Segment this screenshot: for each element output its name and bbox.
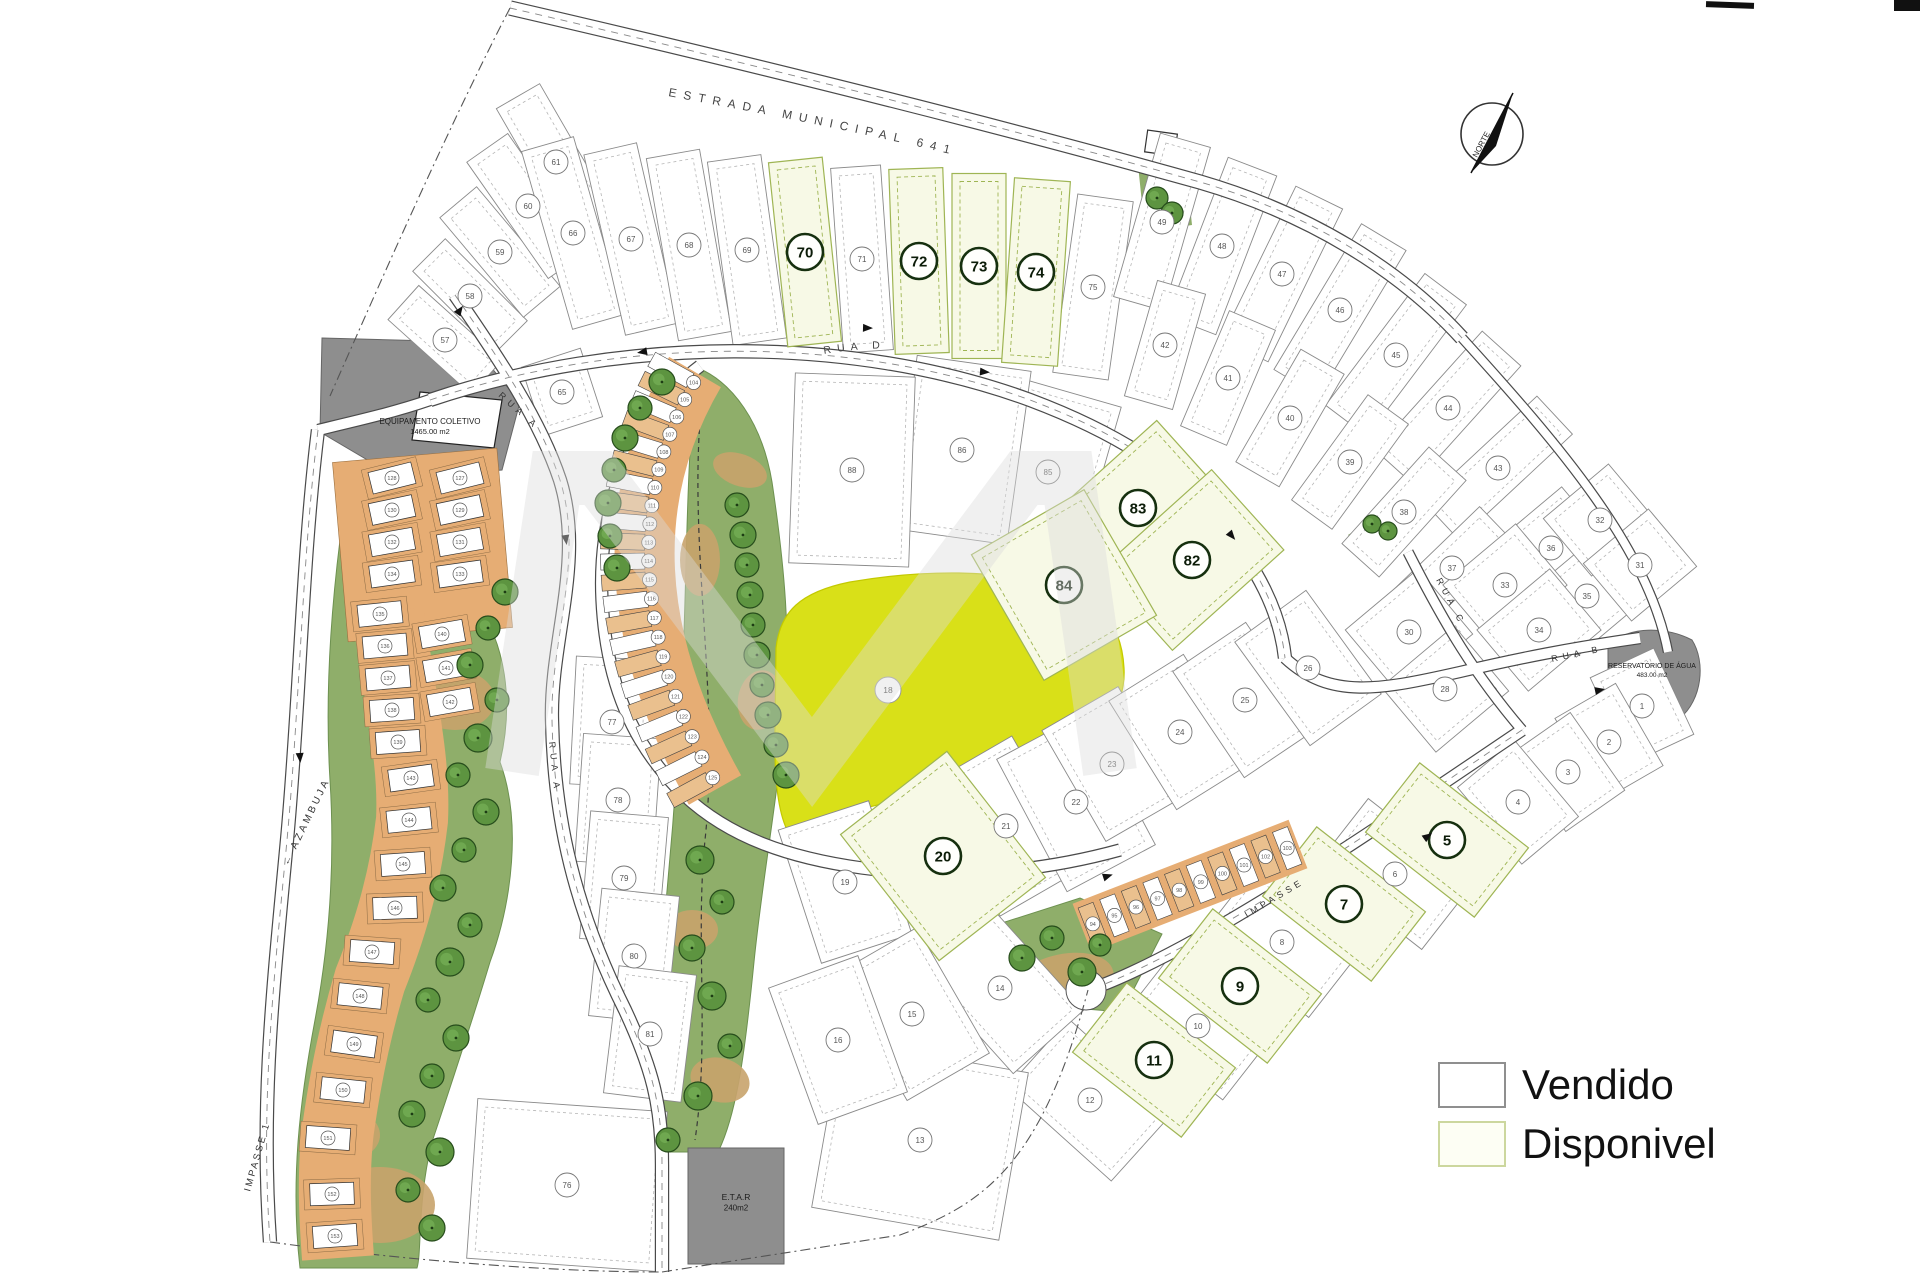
lot-number-121: 121 — [669, 689, 683, 703]
lot-number-31: 31 — [1628, 553, 1652, 577]
lot-number-19: 19 — [833, 870, 857, 894]
svg-text:140: 140 — [437, 632, 446, 638]
lot-number-86: 86 — [950, 438, 974, 462]
svg-text:66: 66 — [569, 229, 578, 238]
lot-number-10: 10 — [1186, 1014, 1210, 1038]
svg-text:30: 30 — [1405, 628, 1414, 637]
tree-icon — [698, 982, 726, 1010]
lot-number-145: 145 — [396, 857, 410, 871]
tree-icon — [420, 1064, 444, 1088]
lot-number-142: 142 — [443, 695, 457, 709]
lot-number-134: 134 — [385, 567, 399, 581]
lot-number-78: 78 — [606, 788, 630, 812]
lot-number-106: 106 — [670, 410, 684, 424]
svg-text:33: 33 — [1501, 581, 1510, 590]
svg-text:73: 73 — [971, 259, 988, 276]
lot-number-6: 6 — [1383, 862, 1407, 886]
lot-number-35: 35 — [1575, 584, 1599, 608]
lot-number-44: 44 — [1436, 396, 1460, 420]
svg-text:131: 131 — [455, 540, 464, 546]
lot-number-3: 3 — [1556, 760, 1580, 784]
lot-number-42: 42 — [1153, 333, 1177, 357]
lot-number-26: 26 — [1296, 656, 1320, 680]
lot-number-1: 1 — [1630, 694, 1654, 718]
lot-number-132: 132 — [385, 535, 399, 549]
svg-text:72: 72 — [911, 254, 928, 271]
tree-icon — [1009, 945, 1035, 971]
svg-text:95: 95 — [1111, 913, 1117, 919]
lot-number-130: 130 — [385, 503, 399, 517]
legend-label-disponivel: Disponivel — [1522, 1123, 1716, 1165]
svg-text:12: 12 — [1086, 1096, 1095, 1105]
lot-number-107: 107 — [663, 427, 677, 441]
svg-text:123: 123 — [688, 735, 697, 741]
lot-number-25: 25 — [1233, 688, 1257, 712]
tree-icon — [473, 799, 499, 825]
svg-text:28: 28 — [1441, 685, 1450, 694]
lot-number-28: 28 — [1433, 677, 1457, 701]
svg-text:74: 74 — [1028, 265, 1045, 282]
svg-text:105: 105 — [680, 398, 689, 404]
svg-text:80: 80 — [630, 952, 639, 961]
svg-text:77: 77 — [608, 718, 617, 727]
svg-text:48: 48 — [1218, 242, 1227, 251]
svg-text:130: 130 — [387, 508, 396, 514]
svg-text:139: 139 — [393, 740, 402, 746]
svg-text:37: 37 — [1448, 564, 1457, 573]
svg-text:39: 39 — [1346, 458, 1355, 467]
svg-text:81: 81 — [646, 1030, 655, 1039]
lot-number-82: 82 — [1174, 542, 1210, 578]
tree-icon — [1379, 522, 1397, 540]
lot-number-4: 4 — [1506, 790, 1530, 814]
svg-text:38: 38 — [1400, 508, 1409, 517]
svg-text:108: 108 — [659, 450, 668, 456]
svg-text:125: 125 — [708, 776, 717, 782]
tree-icon — [684, 1082, 712, 1110]
lot-number-149: 149 — [347, 1037, 361, 1051]
lot-number-24: 24 — [1168, 720, 1192, 744]
lot-number-21: 21 — [994, 814, 1018, 838]
lot-number-46: 46 — [1328, 298, 1352, 322]
lot-number-108: 108 — [657, 445, 671, 459]
svg-text:57: 57 — [441, 336, 450, 345]
lot-number-94: 94 — [1086, 917, 1100, 931]
svg-text:75: 75 — [1089, 283, 1098, 292]
lot-number-30: 30 — [1397, 620, 1421, 644]
svg-text:19: 19 — [841, 878, 850, 887]
svg-text:98: 98 — [1176, 888, 1182, 894]
lot-number-48: 48 — [1210, 234, 1234, 258]
lot-number-16: 16 — [826, 1028, 850, 1052]
svg-text:94: 94 — [1090, 922, 1096, 928]
lot-number-41: 41 — [1216, 366, 1240, 390]
lot-number-104: 104 — [687, 376, 701, 390]
lot-number-45: 45 — [1384, 343, 1408, 367]
tree-icon — [457, 652, 483, 678]
lot-number-105: 105 — [678, 393, 692, 407]
svg-text:8: 8 — [1280, 938, 1285, 947]
svg-text:147: 147 — [367, 950, 376, 956]
svg-text:142: 142 — [445, 700, 454, 706]
lot-number-119: 119 — [656, 650, 670, 664]
svg-text:152: 152 — [327, 1192, 336, 1198]
lot-number-148: 148 — [353, 989, 367, 1003]
lot-number-96: 96 — [1129, 900, 1143, 914]
lot-number-138: 138 — [385, 703, 399, 717]
lot-number-77: 77 — [600, 710, 624, 734]
svg-text:43: 43 — [1494, 464, 1503, 473]
lot-number-100: 100 — [1215, 866, 1229, 880]
lot-number-70: 70 — [787, 234, 823, 270]
lot-number-32: 32 — [1588, 508, 1612, 532]
lot-number-47: 47 — [1270, 262, 1294, 286]
lot-number-2: 2 — [1597, 730, 1621, 754]
tree-icon — [725, 493, 749, 517]
svg-text:86: 86 — [958, 446, 967, 455]
svg-text:117: 117 — [650, 616, 659, 622]
svg-text:35: 35 — [1583, 592, 1592, 601]
svg-text:10: 10 — [1194, 1022, 1203, 1031]
lot-number-80: 80 — [622, 944, 646, 968]
lot-number-36: 36 — [1539, 536, 1563, 560]
svg-text:60: 60 — [524, 202, 533, 211]
svg-text:129: 129 — [455, 508, 464, 514]
svg-text:153: 153 — [330, 1234, 339, 1240]
lot-number-69: 69 — [735, 238, 759, 262]
lot-number-109: 109 — [652, 463, 666, 477]
lot-number-57: 57 — [433, 328, 457, 352]
lot-number-65: 65 — [550, 380, 574, 404]
lot-number-137: 137 — [381, 671, 395, 685]
svg-text:20: 20 — [935, 849, 952, 866]
lot-number-136: 136 — [378, 639, 392, 653]
svg-text:40: 40 — [1286, 414, 1295, 423]
lot-number-123: 123 — [685, 730, 699, 744]
lot-number-66: 66 — [561, 221, 585, 245]
lot-number-103: 103 — [1280, 841, 1294, 855]
lot-number-140: 140 — [435, 627, 449, 641]
lot-number-12: 12 — [1078, 1088, 1102, 1112]
svg-text:148: 148 — [355, 994, 364, 1000]
lot-number-88: 88 — [840, 458, 864, 482]
lot-number-125: 125 — [706, 771, 720, 785]
svg-text:119: 119 — [659, 655, 668, 661]
svg-text:121: 121 — [671, 694, 680, 700]
lot-number-83: 83 — [1120, 490, 1156, 526]
lot-number-144: 144 — [402, 813, 416, 827]
lot-number-76: 76 — [555, 1173, 579, 1197]
svg-text:150: 150 — [338, 1088, 347, 1094]
tree-icon — [464, 724, 492, 752]
svg-text:76: 76 — [563, 1181, 572, 1190]
lot-number-81: 81 — [638, 1022, 662, 1046]
lot-number-139: 139 — [391, 735, 405, 749]
tree-icon — [686, 846, 714, 874]
svg-text:22: 22 — [1072, 798, 1081, 807]
tree-icon — [446, 763, 470, 787]
lot-number-59: 59 — [488, 240, 512, 264]
svg-text:110: 110 — [650, 486, 659, 492]
svg-text:83: 83 — [1130, 501, 1147, 518]
tree-icon — [396, 1178, 420, 1202]
tree-icon — [735, 553, 759, 577]
tree-icon — [476, 616, 500, 640]
svg-text:71: 71 — [858, 255, 867, 264]
svg-text:128: 128 — [387, 476, 396, 482]
lot-number-131: 131 — [453, 535, 467, 549]
svg-text:32: 32 — [1596, 516, 1605, 525]
lot-number-13: 13 — [908, 1128, 932, 1152]
svg-text:78: 78 — [614, 796, 623, 805]
lot-number-117: 117 — [647, 611, 661, 625]
tree-icon — [1363, 515, 1381, 533]
lot-number-150: 150 — [336, 1083, 350, 1097]
svg-text:107: 107 — [665, 432, 674, 438]
lot-number-153: 153 — [328, 1229, 342, 1243]
lot-number-43: 43 — [1486, 456, 1510, 480]
tree-icon — [430, 875, 456, 901]
tree-icon — [612, 425, 638, 451]
lot-number-7: 7 — [1326, 886, 1362, 922]
svg-text:3: 3 — [1566, 768, 1571, 777]
legend-item-disponivel: Disponivel — [1438, 1121, 1716, 1167]
lot-number-98: 98 — [1172, 883, 1186, 897]
svg-text:21: 21 — [1002, 822, 1011, 831]
svg-text:13: 13 — [916, 1136, 925, 1145]
svg-text:31: 31 — [1636, 561, 1645, 570]
tree-icon — [718, 1034, 742, 1058]
svg-text:118: 118 — [654, 635, 663, 641]
svg-text:97: 97 — [1155, 897, 1161, 903]
svg-text:42: 42 — [1161, 341, 1170, 350]
svg-text:45: 45 — [1392, 351, 1401, 360]
svg-text:99: 99 — [1198, 880, 1204, 886]
svg-text:69: 69 — [743, 246, 752, 255]
svg-text:46: 46 — [1336, 306, 1345, 315]
lot-number-147: 147 — [365, 945, 379, 959]
lot-number-58: 58 — [458, 284, 482, 308]
svg-text:103: 103 — [1283, 846, 1292, 852]
tree-icon — [730, 522, 756, 548]
lot-number-5: 5 — [1429, 822, 1465, 858]
lot-number-110: 110 — [648, 481, 662, 495]
lot-number-128: 128 — [385, 471, 399, 485]
tree-icon — [452, 838, 476, 862]
svg-text:9: 9 — [1236, 979, 1244, 996]
lot-number-135: 135 — [373, 607, 387, 621]
svg-text:36: 36 — [1547, 544, 1556, 553]
lot-number-99: 99 — [1194, 875, 1208, 889]
lot-number-15: 15 — [900, 1002, 924, 1026]
tree-icon — [419, 1215, 445, 1241]
svg-text:5: 5 — [1443, 833, 1451, 850]
lot-number-38: 38 — [1392, 500, 1416, 524]
lot-number-74: 74 — [1018, 254, 1054, 290]
lot-number-34: 34 — [1527, 618, 1551, 642]
tree-icon — [656, 1128, 680, 1152]
svg-text:67: 67 — [627, 235, 636, 244]
lot-number-146: 146 — [388, 901, 402, 915]
lot-number-75: 75 — [1081, 275, 1105, 299]
svg-text:124: 124 — [697, 755, 706, 761]
lot-number-11: 11 — [1136, 1042, 1172, 1078]
lot-number-9: 9 — [1222, 968, 1258, 1004]
lot-number-73: 73 — [961, 248, 997, 284]
svg-text:145: 145 — [398, 862, 407, 868]
svg-text:135: 135 — [375, 612, 384, 618]
svg-text:141: 141 — [441, 666, 450, 672]
etar-label: E.T.A.R — [722, 1192, 751, 1202]
lot-number-101: 101 — [1237, 858, 1251, 872]
svg-text:127: 127 — [455, 476, 464, 482]
svg-text:70: 70 — [797, 245, 814, 262]
svg-text:146: 146 — [390, 906, 399, 912]
tree-icon — [443, 1025, 469, 1051]
svg-text:11: 11 — [1146, 1053, 1162, 1070]
lot-number-97: 97 — [1151, 892, 1165, 906]
svg-text:1: 1 — [1640, 702, 1645, 711]
svg-text:120: 120 — [664, 674, 673, 680]
tree-icon — [1089, 934, 1111, 956]
svg-text:68: 68 — [685, 241, 694, 250]
lot-number-79: 79 — [612, 866, 636, 890]
svg-text:7: 7 — [1340, 897, 1348, 914]
legend-label-vendido: Vendido — [1522, 1064, 1674, 1106]
svg-text:106: 106 — [672, 415, 681, 421]
lot-number-67: 67 — [619, 227, 643, 251]
reservatorio-label: RESERVATÓRIO DE ÁGUA — [1608, 661, 1696, 670]
lot-number-127: 127 — [453, 471, 467, 485]
svg-text:104: 104 — [689, 381, 698, 387]
lot-number-60: 60 — [516, 194, 540, 218]
svg-text:61: 61 — [552, 158, 561, 167]
svg-text:96: 96 — [1133, 905, 1139, 911]
tree-icon — [416, 988, 440, 1012]
svg-text:2: 2 — [1607, 738, 1612, 747]
svg-text:151: 151 — [323, 1136, 332, 1142]
lot-number-143: 143 — [404, 771, 418, 785]
svg-text:58: 58 — [466, 292, 475, 301]
svg-text:79: 79 — [620, 874, 629, 883]
tree-icon — [628, 396, 652, 420]
lot-number-133: 133 — [453, 567, 467, 581]
svg-text:47: 47 — [1278, 270, 1287, 279]
lot-number-102: 102 — [1259, 850, 1273, 864]
legend-swatch-vendido — [1438, 1062, 1506, 1108]
legend-item-vendido: Vendido — [1438, 1062, 1716, 1108]
lot-number-141: 141 — [439, 661, 453, 675]
svg-text:65: 65 — [558, 388, 567, 397]
svg-text:25: 25 — [1241, 696, 1250, 705]
lot-number-129: 129 — [453, 503, 467, 517]
svg-text:59: 59 — [496, 248, 505, 257]
svg-text:102: 102 — [1261, 855, 1270, 861]
svg-text:6: 6 — [1393, 870, 1398, 879]
svg-text:134: 134 — [387, 572, 396, 578]
crop-artifacts — [1706, 0, 1920, 11]
svg-text:149: 149 — [349, 1042, 358, 1048]
lot-number-72: 72 — [901, 243, 937, 279]
svg-text:44: 44 — [1444, 404, 1453, 413]
svg-text:100: 100 — [1218, 871, 1227, 877]
svg-text:16: 16 — [834, 1036, 843, 1045]
legend: Vendido Disponivel — [1438, 1062, 1716, 1167]
lot-number-124: 124 — [695, 750, 709, 764]
equipamento-size: 1465.00 m2 — [410, 427, 450, 436]
lot-number-151: 151 — [321, 1131, 335, 1145]
equipamento-label: EQUIPAMENTO COLETIVO — [379, 417, 480, 426]
svg-text:24: 24 — [1176, 728, 1185, 737]
svg-text:15: 15 — [908, 1010, 917, 1019]
svg-text:14: 14 — [996, 984, 1005, 993]
lot-number-118: 118 — [651, 630, 665, 644]
svg-text:88: 88 — [848, 466, 857, 475]
lot-number-152: 152 — [325, 1187, 339, 1201]
tree-icon — [458, 913, 482, 937]
svg-text:101: 101 — [1239, 863, 1248, 869]
lot-number-33: 33 — [1493, 573, 1517, 597]
lot-number-22: 22 — [1064, 790, 1088, 814]
tree-icon — [737, 582, 763, 608]
lot-number-8: 8 — [1270, 930, 1294, 954]
svg-text:26: 26 — [1304, 664, 1313, 673]
tree-icon — [649, 369, 675, 395]
svg-text:144: 144 — [404, 818, 413, 824]
svg-text:132: 132 — [387, 540, 396, 546]
svg-text:82: 82 — [1184, 553, 1201, 570]
svg-text:109: 109 — [654, 468, 663, 474]
svg-text:122: 122 — [679, 714, 688, 720]
lot-number-39: 39 — [1338, 450, 1362, 474]
svg-text:41: 41 — [1224, 374, 1233, 383]
svg-text:143: 143 — [406, 776, 415, 782]
lot-number-20: 20 — [925, 838, 961, 874]
svg-text:49: 49 — [1158, 218, 1167, 227]
lot-number-122: 122 — [676, 709, 690, 723]
lot-number-71: 71 — [850, 247, 874, 271]
tree-icon — [1040, 926, 1064, 950]
lot-number-40: 40 — [1278, 406, 1302, 430]
tree-icon — [1068, 958, 1096, 986]
svg-text:34: 34 — [1535, 626, 1544, 635]
road-label-estrada: ESTRADA MUNICIPAL 641 — [667, 85, 958, 158]
legend-swatch-disponivel — [1438, 1121, 1506, 1167]
lot-number-95: 95 — [1107, 908, 1121, 922]
lot-number-68: 68 — [677, 233, 701, 257]
svg-text:136: 136 — [380, 644, 389, 650]
tree-icon — [426, 1138, 454, 1166]
lot-number-61: 61 — [544, 150, 568, 174]
tree-icon — [710, 890, 734, 914]
lot-number-14: 14 — [988, 976, 1012, 1000]
etar-size: 240m2 — [724, 1204, 749, 1213]
lot-number-49: 49 — [1150, 210, 1174, 234]
reservatorio-size: 483.00 m2 — [1637, 672, 1668, 679]
svg-text:138: 138 — [387, 708, 396, 714]
compass: NORTE — [1461, 93, 1523, 173]
svg-text:137: 137 — [383, 676, 392, 682]
tree-icon — [399, 1101, 425, 1127]
tree-icon — [436, 948, 464, 976]
lot-number-120: 120 — [662, 669, 676, 683]
svg-text:4: 4 — [1516, 798, 1521, 807]
svg-text:133: 133 — [455, 572, 464, 578]
tree-icon — [679, 935, 705, 961]
